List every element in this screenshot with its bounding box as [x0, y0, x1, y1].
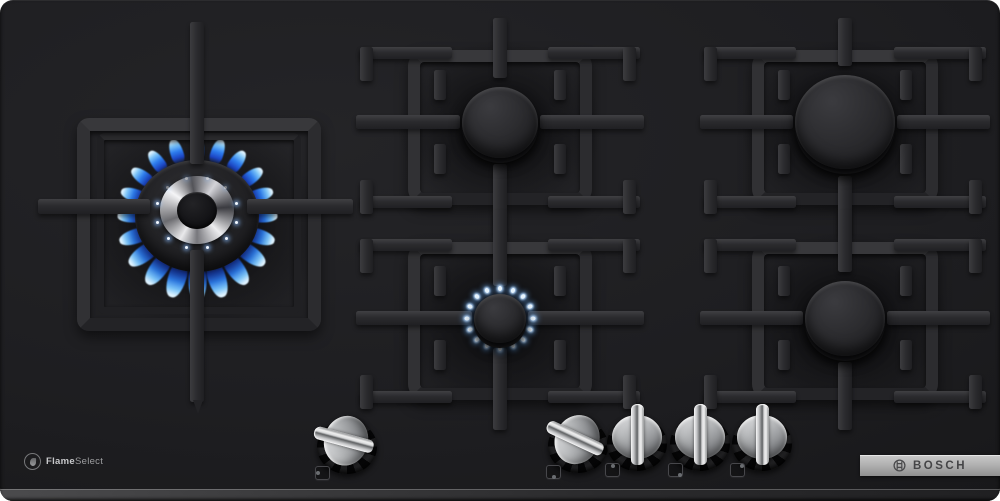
product-photo-bosch-gas-hob: FlameSelect BOSCH — [0, 0, 1000, 501]
grate-bar — [360, 196, 452, 208]
knob-handle — [631, 404, 644, 465]
wok-grate-bar — [190, 22, 204, 164]
grate-bar — [360, 180, 373, 214]
grate-bar — [434, 266, 446, 296]
grate-bar — [887, 311, 990, 325]
grate-bar — [778, 340, 790, 370]
knob-wok-burner[interactable] — [312, 406, 382, 480]
knob-bottom-right-burner[interactable] — [665, 403, 735, 477]
grate-bar — [838, 18, 852, 66]
grate-bar — [356, 115, 460, 129]
bosch-logo-text: BOSCH — [913, 460, 967, 472]
grate-bar — [704, 196, 796, 208]
wok-grate-bar-tip — [193, 400, 203, 414]
knob-top-right-burner[interactable] — [727, 403, 797, 477]
grate-bar — [900, 144, 912, 174]
grate-bar — [360, 239, 452, 251]
grate-bar — [434, 144, 446, 174]
grate-bar — [623, 180, 636, 214]
hob-glass-surface: FlameSelect BOSCH — [0, 0, 1000, 501]
grate-bar — [360, 47, 373, 81]
flameselect-badge: FlameSelect — [24, 453, 103, 470]
grate-bar — [778, 70, 790, 100]
grate-bar — [360, 47, 452, 59]
grate-bar — [493, 18, 507, 78]
hob-front-bevel — [0, 489, 1000, 501]
grate-bar — [969, 239, 982, 273]
wok-grate-bar — [38, 199, 150, 214]
grate-bar — [704, 47, 717, 81]
burner-cap-bottom-right — [805, 281, 885, 356]
burner-position-dot — [678, 473, 682, 477]
grate-bar — [900, 266, 912, 296]
grate-bar — [900, 70, 912, 100]
simmer-flame-dot — [531, 316, 536, 320]
grate-bar — [554, 266, 566, 296]
knob-top-center-burner[interactable] — [602, 403, 672, 477]
grate-bar — [434, 70, 446, 100]
burner-position-icon — [605, 463, 620, 477]
grate-bar — [360, 375, 373, 409]
grate-bar — [540, 115, 644, 129]
burner-cap-top-right — [795, 75, 895, 169]
flame-icon — [24, 453, 41, 470]
grate-bar — [356, 311, 472, 325]
wok-grate-bar — [247, 199, 353, 214]
bosch-logo-strip: BOSCH — [860, 455, 1000, 476]
grate-bar — [528, 311, 644, 325]
burner-position-icon — [668, 463, 683, 477]
burner-position-dot — [611, 464, 615, 468]
grate-bar — [360, 239, 373, 273]
grate-bar — [969, 375, 982, 409]
burner-position-dot — [740, 464, 744, 468]
grate-bar — [623, 239, 636, 273]
grate-bar — [778, 266, 790, 296]
grate-bar — [700, 115, 793, 129]
grate-bar — [704, 239, 717, 273]
grate-bar — [838, 210, 852, 272]
grate-bar — [434, 340, 446, 370]
knob-handle — [756, 404, 769, 465]
grate-bar — [704, 391, 796, 403]
grate-bar — [704, 180, 717, 214]
grate-bar — [969, 180, 982, 214]
burner-cap-bottom-center — [474, 294, 526, 343]
burner-cap-top-center — [462, 87, 538, 158]
grate-bar — [623, 47, 636, 81]
grate-bar — [897, 115, 990, 129]
grate-bar — [554, 70, 566, 100]
grate-bar — [704, 239, 796, 251]
burner-position-icon — [546, 465, 561, 479]
burner-position-icon — [315, 466, 330, 480]
simmer-flame-dot — [465, 316, 470, 320]
grate-bar — [493, 348, 507, 430]
flameselect-label: FlameSelect — [46, 456, 103, 467]
grate-bar — [493, 210, 507, 286]
grate-bar — [554, 144, 566, 174]
grate-bar — [700, 311, 803, 325]
burner-position-dot — [552, 475, 556, 479]
grate-bar — [554, 340, 566, 370]
grate-bar — [838, 362, 852, 430]
grate-bar — [778, 144, 790, 174]
burner-position-icon — [730, 463, 745, 477]
grate-bar — [900, 340, 912, 370]
knob-handle — [694, 404, 707, 465]
simmer-flame-dot — [498, 286, 502, 291]
grate-bar — [704, 47, 796, 59]
bosch-logo-icon — [893, 459, 906, 472]
grate-bar — [969, 47, 982, 81]
burner-position-dot — [316, 471, 320, 475]
grate-bar — [360, 391, 452, 403]
wok-grate-bar — [190, 250, 204, 402]
